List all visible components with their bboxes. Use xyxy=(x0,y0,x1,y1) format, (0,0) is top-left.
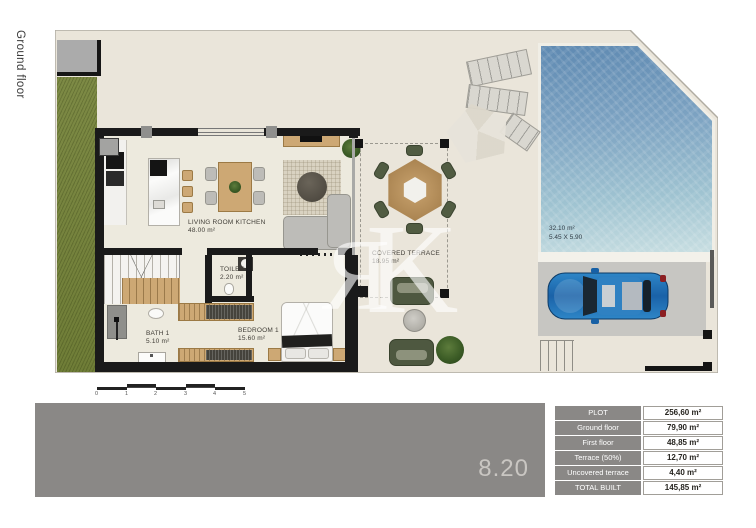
wall-interior xyxy=(246,255,252,302)
terrace-column xyxy=(440,139,449,148)
kitchen-stool xyxy=(182,202,193,213)
terrace-chair xyxy=(406,145,423,156)
bath-sink xyxy=(148,308,164,319)
bed-duvet xyxy=(282,303,332,336)
room-area: 5.10 m² xyxy=(146,338,169,346)
room-label-terrace: COVERED TERRACE 18.95 m² xyxy=(372,250,440,267)
pool-label: 32.10 m² 5.45 X 5.90 xyxy=(549,225,582,243)
scale-segment xyxy=(127,384,157,387)
wardrobe-dark-section xyxy=(206,305,252,319)
cooktop xyxy=(150,160,167,176)
wall-left xyxy=(95,128,104,372)
row-value: 256,60 m² xyxy=(643,406,723,420)
faucet xyxy=(150,354,153,357)
pillow xyxy=(285,348,306,359)
round-rug xyxy=(297,172,327,202)
kitchen-stool xyxy=(182,170,193,181)
scale-tick: 2 xyxy=(154,391,157,397)
wall-interior xyxy=(104,248,182,255)
room-label-living: LIVING ROOM KITCHEN 48.00 m² xyxy=(188,219,265,236)
scale-tick: 5 xyxy=(243,391,246,397)
table-plant xyxy=(229,181,241,193)
bed-blanket xyxy=(282,334,332,348)
row-label: Ground floor xyxy=(555,421,641,435)
room-label-bedroom: BEDROOM 1 15.60 m² xyxy=(238,327,279,344)
room-area: 18.95 m² xyxy=(372,258,440,266)
room-label-toilet: TOILET 2.20 m² xyxy=(220,266,244,283)
dining-chair xyxy=(205,167,217,181)
nightstand xyxy=(268,348,281,361)
wall-column xyxy=(703,330,712,339)
table-row: Uncovered terrace 4,40 m² xyxy=(555,466,723,480)
scale-tick: 0 xyxy=(95,391,98,397)
wall-bottom xyxy=(95,362,358,372)
wall-interior xyxy=(207,248,318,255)
toilet-bowl xyxy=(224,283,234,295)
entrance-door xyxy=(99,138,119,156)
row-label: First floor xyxy=(555,436,641,450)
table-row: First floor 48,85 m² xyxy=(555,436,723,450)
table-row: Terrace (50%) 12,70 m² xyxy=(555,451,723,465)
coffee-table xyxy=(403,309,426,332)
walkway xyxy=(538,252,713,262)
scale-tick: 1 xyxy=(125,391,128,397)
room-label-bath: BATH 1 5.10 m² xyxy=(146,330,169,347)
kitchen-stool xyxy=(182,186,193,197)
grass-strip xyxy=(57,77,97,372)
entrance-steps xyxy=(540,340,574,371)
room-name: BATH 1 xyxy=(146,330,169,338)
wall-corner xyxy=(349,128,358,138)
lounge-cushion xyxy=(396,350,427,360)
dimension-label: 8.20 xyxy=(478,455,529,483)
table-row: PLOT 256,60 m² xyxy=(555,406,723,420)
boundary-wall-bottom xyxy=(645,366,712,371)
scale-segment xyxy=(186,384,216,387)
row-value: 12,70 m² xyxy=(643,451,723,465)
dining-chair xyxy=(253,167,265,181)
room-area: 2.20 m² xyxy=(220,274,244,282)
room-area: 48.00 m² xyxy=(188,227,265,235)
row-value: 48,85 m² xyxy=(643,436,723,450)
pool-area: 32.10 m² xyxy=(549,225,582,234)
room-name: TOILET xyxy=(220,266,244,274)
scale-tick: 3 xyxy=(184,391,187,397)
scale-segment xyxy=(156,387,186,390)
kitchen-sink xyxy=(153,200,165,209)
pillar xyxy=(266,126,277,138)
window xyxy=(198,128,264,136)
tv xyxy=(300,135,322,142)
terrace-column xyxy=(440,289,449,298)
room-area: 15.60 m² xyxy=(238,335,279,343)
scale-segment xyxy=(97,387,127,390)
row-label: Terrace (50%) xyxy=(555,451,641,465)
table-row: TOTAL BUILT 145,85 m² xyxy=(555,481,723,495)
room-name: COVERED TERRACE xyxy=(372,250,440,258)
room-name: BEDROOM 1 xyxy=(238,327,279,335)
staircase-lower xyxy=(122,278,180,304)
dining-chair xyxy=(205,191,217,205)
wall-right xyxy=(345,255,358,372)
wall-interior xyxy=(205,255,212,303)
garden-plant xyxy=(436,336,464,364)
row-label: TOTAL BUILT xyxy=(555,481,641,495)
summary-table: PLOT 256,60 m² Ground floor 79,90 m² Fir… xyxy=(555,406,723,495)
utility-pad xyxy=(57,40,101,76)
pillow xyxy=(308,348,329,359)
car xyxy=(545,266,671,326)
floor-title: Ground floor xyxy=(14,30,26,99)
kitchen-fridge xyxy=(106,171,124,186)
sliding-glass-door xyxy=(352,136,355,255)
row-value: 145,85 m² xyxy=(643,481,723,495)
sofa-chaise xyxy=(327,194,351,248)
row-value: 79,90 m² xyxy=(643,421,723,435)
pool-dimensions: 5.45 X 5.90 xyxy=(549,234,582,243)
table-row: Ground floor 79,90 m² xyxy=(555,421,723,435)
room-name: LIVING ROOM KITCHEN xyxy=(188,219,265,227)
wall-interior xyxy=(338,248,352,255)
terrace-chair xyxy=(406,223,423,234)
shower-pipe xyxy=(116,322,118,340)
dining-chair xyxy=(253,191,265,205)
row-value: 4,40 m² xyxy=(643,466,723,480)
floor-plan-sheet: { "sheet": { "floor_label": "Ground floo… xyxy=(0,0,756,528)
boundary-wall xyxy=(710,250,714,308)
row-label: Uncovered terrace xyxy=(555,466,641,480)
scale-tick: 4 xyxy=(213,391,216,397)
pillar xyxy=(141,126,152,138)
scale-segment xyxy=(215,387,245,390)
terrace-column xyxy=(354,139,363,148)
section-bar: 8.20 xyxy=(35,403,545,497)
wardrobe-dark-section xyxy=(206,350,252,360)
row-label: PLOT xyxy=(555,406,641,420)
lounge-cushion xyxy=(397,283,428,293)
